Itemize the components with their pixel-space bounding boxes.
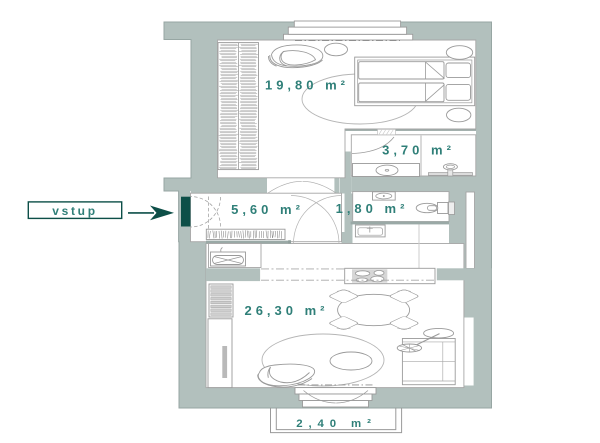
svg-text:26,30 m²: 26,30 m² — [244, 303, 328, 318]
svg-text:5,60 m²: 5,60 m² — [231, 202, 304, 217]
svg-text:3,70 m²: 3,70 m² — [382, 143, 455, 158]
svg-text:1,80 m²: 1,80 m² — [336, 201, 409, 216]
svg-text:vstup: vstup — [52, 204, 98, 218]
svg-text:19,80 m²: 19,80 m² — [265, 77, 349, 92]
svg-text:2,40 m²: 2,40 m² — [296, 418, 377, 430]
